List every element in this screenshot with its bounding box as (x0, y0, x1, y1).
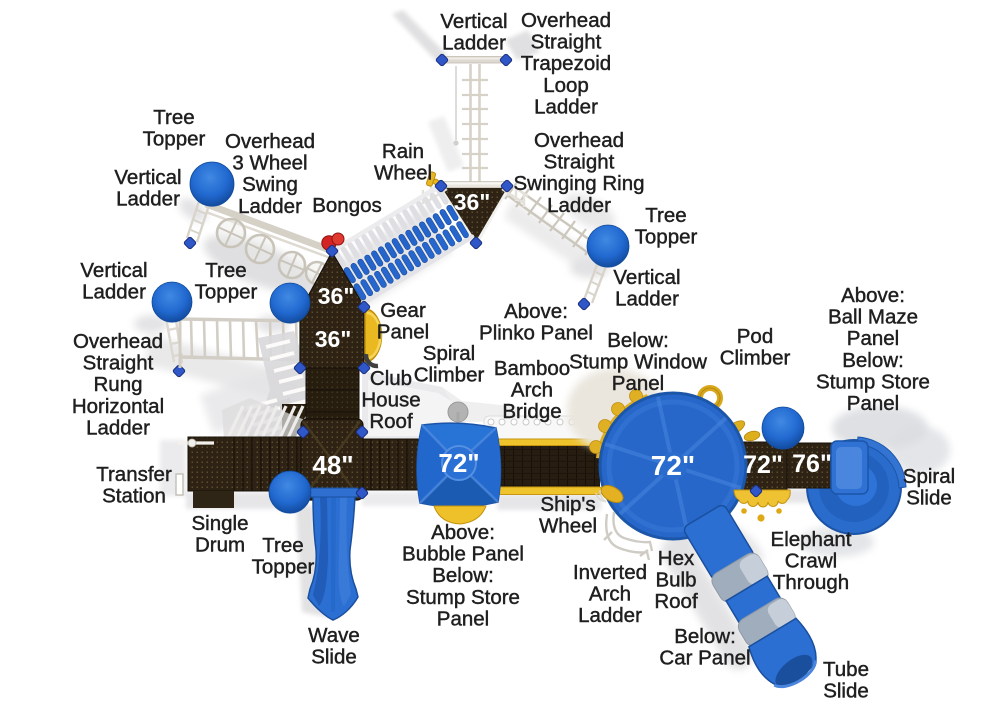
svg-text:ClubHouseRoof: ClubHouseRoof (361, 367, 420, 433)
svg-text:SpiralClimber: SpiralClimber (414, 342, 485, 387)
svg-text:36": 36" (454, 189, 491, 215)
svg-text:SpiralSlide: SpiralSlide (903, 465, 955, 510)
svg-text:SingleDrum: SingleDrum (192, 512, 249, 557)
svg-text:72": 72" (651, 450, 695, 481)
svg-text:Ship'sWheel: Ship'sWheel (539, 493, 597, 538)
svg-text:Overhead3 WheelSwingLadder: Overhead3 WheelSwingLadder (225, 130, 315, 218)
svg-text:36": 36" (318, 283, 355, 309)
svg-text:76": 76" (792, 450, 832, 478)
svg-text:WaveSlide: WaveSlide (308, 624, 360, 669)
svg-text:VerticalLadder: VerticalLadder (114, 166, 181, 211)
svg-text:OverheadStraightTrapezoidLoopL: OverheadStraightTrapezoidLoopLadder (521, 9, 611, 118)
svg-text:GearPanel: GearPanel (377, 299, 429, 344)
svg-text:RainWheel: RainWheel (374, 140, 432, 185)
svg-text:VerticalLadder: VerticalLadder (80, 259, 147, 304)
svg-text:TransferStation: TransferStation (96, 463, 172, 508)
svg-text:72": 72" (743, 451, 783, 479)
svg-text:48": 48" (312, 450, 353, 480)
svg-text:TubeSlide: TubeSlide (823, 658, 869, 703)
svg-text:HexBulbRoof: HexBulbRoof (654, 547, 698, 613)
svg-text:VerticalLadder: VerticalLadder (440, 10, 507, 55)
svg-text:36": 36" (315, 326, 352, 352)
svg-text:Bongos: Bongos (312, 194, 382, 217)
svg-text:72": 72" (438, 448, 479, 478)
svg-text:VerticalLadder: VerticalLadder (613, 266, 680, 311)
